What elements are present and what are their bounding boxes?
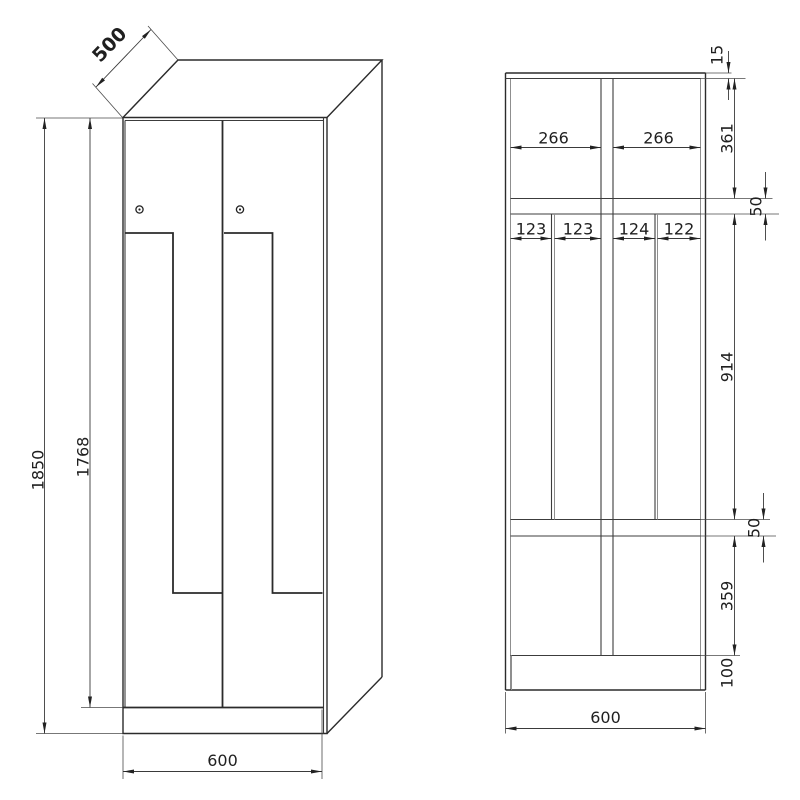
dim-middle-compartment: 914 — [718, 214, 737, 520]
slot-partition-right — [655, 214, 658, 520]
dim-door-height: 1768 — [74, 118, 123, 708]
dim-overall-height: 1850 — [29, 118, 123, 734]
dim-middle-compartment-label: 914 — [718, 352, 737, 383]
z-door-split-right — [224, 233, 323, 593]
dim-slot-4-label: 122 — [664, 220, 695, 239]
dim-opening-right-label: 266 — [643, 129, 674, 148]
dim-slot-2-label: 123 — [563, 220, 594, 239]
dim-width-section-label: 600 — [590, 708, 621, 727]
dim-top-compartment-label: 361 — [718, 123, 737, 154]
side-bottom-edge — [327, 677, 382, 734]
dim-plinth-label: 100 — [718, 658, 737, 689]
dim-slot-4: 122 — [658, 220, 701, 241]
shelf-upper — [511, 199, 701, 215]
center-partition — [601, 79, 613, 656]
dim-slot-1-label: 123 — [516, 220, 547, 239]
dim-shelf-bottom: 50 — [745, 493, 766, 563]
slot-partition-left — [552, 214, 555, 520]
lock-left — [136, 206, 143, 213]
dim-shelf-top-label: 50 — [747, 196, 766, 216]
cabinet-body — [123, 60, 382, 734]
locker-technical-drawing: 500 1850 1768 600 — [0, 0, 800, 800]
dim-slot-1: 123 — [511, 220, 552, 241]
front-view — [123, 60, 382, 734]
dim-depth: 500 — [88, 23, 178, 118]
shelf-lower — [511, 520, 701, 537]
dim-top-compartment: 361 — [718, 79, 737, 199]
dim-shelf-bottom-label: 50 — [745, 518, 764, 538]
dim-opening-left-label: 266 — [538, 129, 569, 148]
top-face — [123, 60, 382, 118]
dim-door-height-label: 1768 — [74, 437, 93, 478]
section-view — [506, 73, 706, 690]
dim-width-section: 600 — [506, 692, 706, 734]
z-door-split-left — [125, 233, 222, 593]
dim-opening-right: 266 — [613, 129, 701, 150]
dim-bottom-compartment-label: 359 — [718, 581, 737, 612]
dim-width-front: 600 — [123, 710, 322, 780]
dim-opening-left: 266 — [511, 129, 602, 150]
dim-overall-height-label: 1850 — [29, 450, 48, 491]
dim-bottom-compartment: 359 — [718, 536, 737, 656]
dim-plinth: 100 — [718, 658, 737, 689]
dim-slot-3-label: 124 — [619, 220, 650, 239]
section-carcass — [506, 73, 706, 690]
dim-slot-3: 124 — [613, 220, 655, 241]
dim-depth-label: 500 — [88, 23, 131, 67]
dim-top-panel-label: 15 — [708, 45, 727, 65]
dim-width-front-label: 600 — [207, 751, 238, 770]
section-view-dimensions: 266 266 123 123 124 — [506, 45, 780, 734]
dim-shelf-top: 50 — [747, 172, 768, 241]
front-view-dimensions: 500 1850 1768 600 — [29, 23, 323, 779]
dim-slot-2: 123 — [555, 220, 602, 241]
lock-right — [236, 206, 243, 213]
z-doors — [123, 121, 324, 708]
dim-top-panel: 15 — [708, 45, 731, 100]
